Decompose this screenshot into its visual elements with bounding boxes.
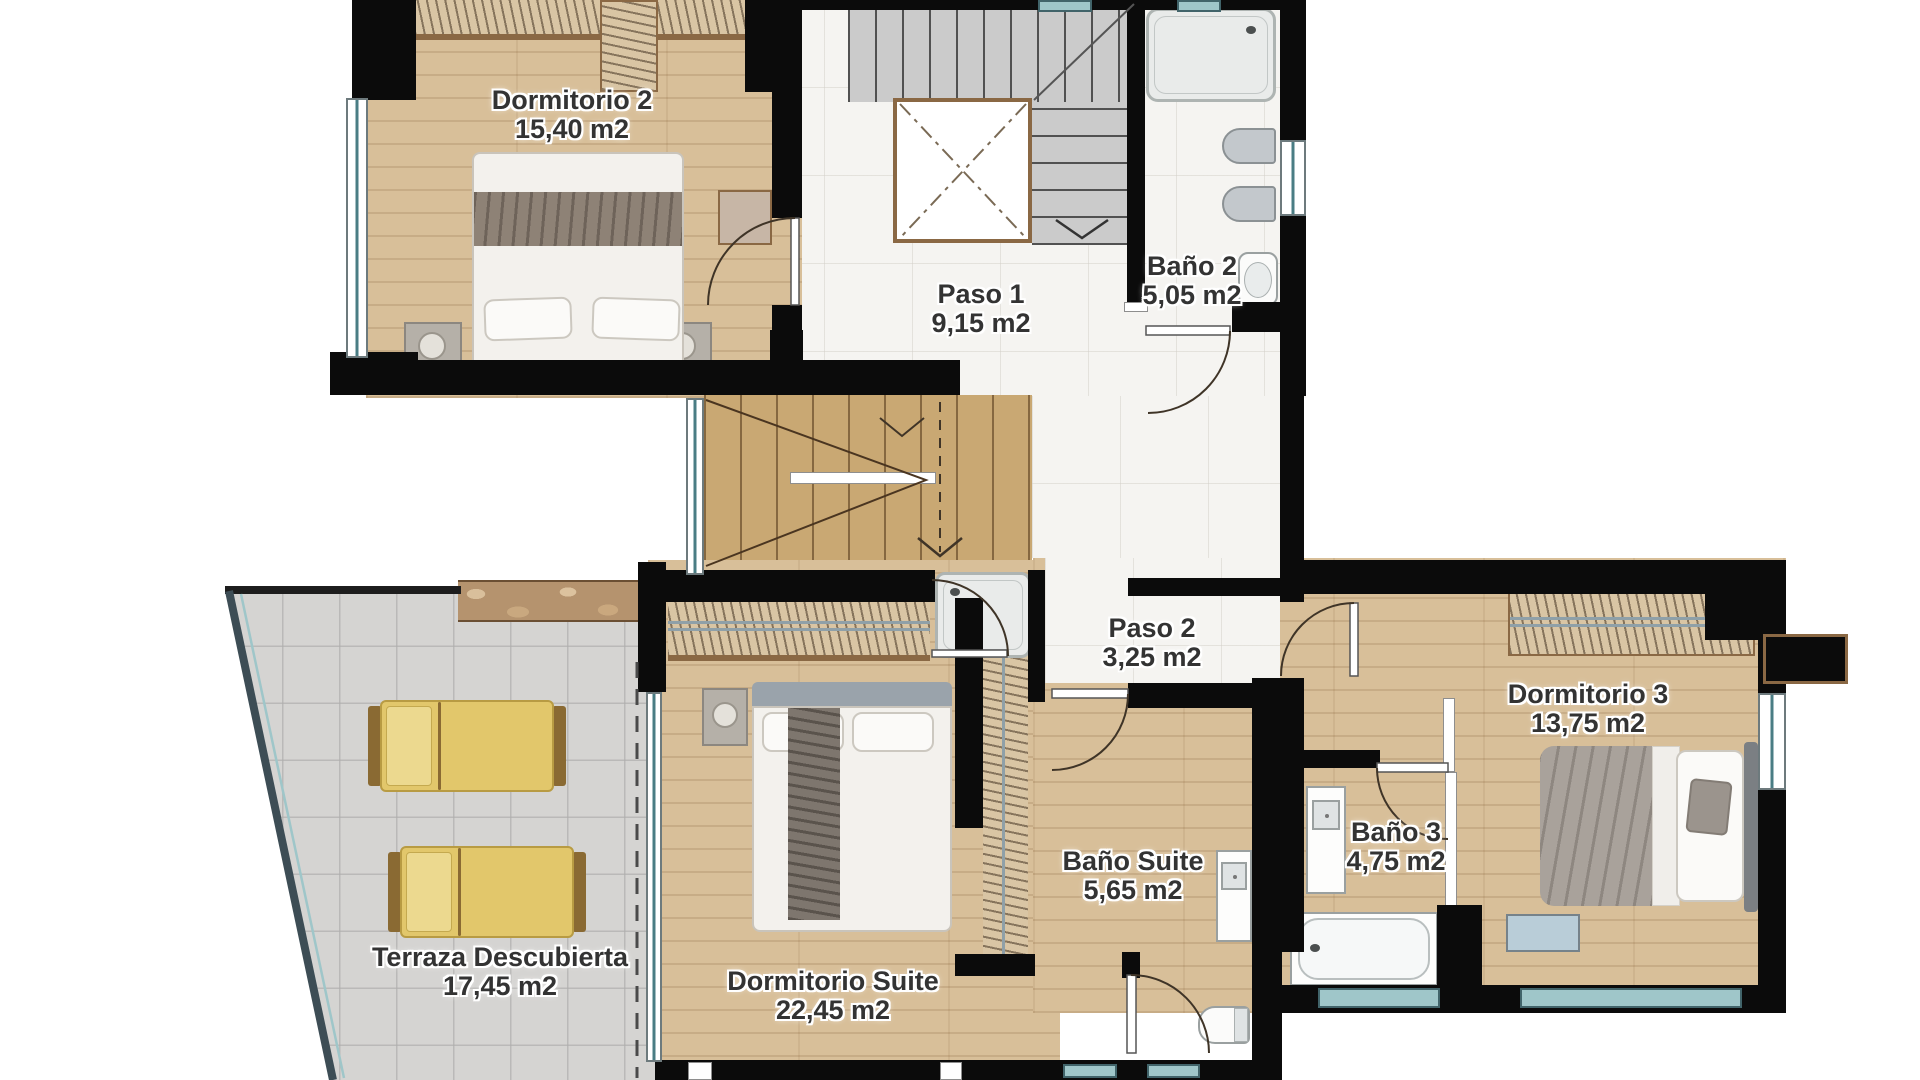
terrace-parapet bbox=[225, 586, 461, 594]
wall bbox=[955, 954, 1035, 976]
gray-pillow bbox=[1685, 778, 1732, 836]
dormitorio2-corner-closet bbox=[600, 0, 658, 92]
dormitorio2-wardrobe bbox=[415, 0, 745, 36]
stair-void bbox=[893, 98, 1032, 243]
bed-bench bbox=[1506, 914, 1580, 952]
shower-tray-bano2 bbox=[1146, 8, 1276, 102]
cabinet bbox=[718, 190, 772, 245]
wall bbox=[772, 92, 802, 218]
wall bbox=[1221, 0, 1280, 10]
room-name: Terraza Descubierta bbox=[372, 943, 628, 972]
window bbox=[1038, 0, 1092, 12]
stairs-side-flight bbox=[1032, 102, 1138, 245]
wall bbox=[1128, 578, 1280, 596]
wood-stairs bbox=[704, 395, 1032, 575]
sink bbox=[1222, 128, 1276, 164]
window bbox=[1063, 1064, 1117, 1078]
lounger-frame bbox=[572, 852, 586, 932]
room-name: Dormitorio Suite bbox=[727, 967, 939, 996]
wall bbox=[330, 360, 960, 395]
label-paso-1: Paso 1 9,15 m2 bbox=[931, 280, 1030, 338]
wall bbox=[638, 562, 666, 692]
suite-wardrobe-rail bbox=[668, 621, 930, 624]
door-jamb bbox=[688, 1062, 712, 1080]
room-area: 13,75 m2 bbox=[1508, 709, 1669, 738]
pillow bbox=[483, 296, 572, 341]
window bbox=[1177, 0, 1221, 12]
lounger-divider bbox=[458, 848, 461, 936]
headboard bbox=[1744, 742, 1758, 912]
wall bbox=[1252, 678, 1304, 952]
tub-faucet bbox=[1310, 944, 1320, 952]
room-area: 22,45 m2 bbox=[727, 996, 939, 1025]
label-bano-3: Baño 3 4,75 m2 bbox=[1346, 818, 1445, 876]
stone-wall bbox=[458, 580, 642, 622]
corridor-floor bbox=[1032, 396, 1282, 558]
window bbox=[1280, 140, 1306, 216]
toilet-tank bbox=[1234, 1008, 1248, 1042]
door-jamb bbox=[940, 1062, 962, 1080]
bed-blanket bbox=[474, 192, 682, 246]
partition bbox=[1445, 772, 1457, 912]
room-area: 17,45 m2 bbox=[372, 972, 628, 1001]
dormitorio2-wardrobe-trim bbox=[415, 34, 745, 40]
wall bbox=[772, 305, 802, 395]
wall bbox=[1122, 952, 1140, 978]
wall bbox=[1280, 0, 1306, 140]
pillow bbox=[852, 712, 934, 752]
window bbox=[346, 98, 368, 358]
window bbox=[686, 398, 704, 575]
room-area: 5,05 m2 bbox=[1142, 281, 1241, 310]
room-area: 9,15 m2 bbox=[931, 309, 1030, 338]
wall bbox=[1758, 790, 1786, 992]
toilet-seat bbox=[1244, 262, 1272, 298]
label-terraza: Terraza Descubierta 17,45 m2 bbox=[372, 943, 628, 1001]
room-name: Baño Suite bbox=[1062, 847, 1203, 876]
wall bbox=[745, 0, 802, 92]
stairs-upper-flight bbox=[848, 8, 1138, 102]
suite-wardrobe-trim bbox=[668, 655, 930, 661]
pillow bbox=[591, 296, 680, 341]
sink bbox=[1222, 186, 1276, 222]
wall bbox=[352, 0, 416, 100]
stair-landing-edge bbox=[790, 472, 936, 484]
lamp bbox=[418, 332, 446, 360]
suite-wardrobe-rail2 bbox=[668, 628, 930, 631]
label-paso-2: Paso 2 3,25 m2 bbox=[1102, 614, 1201, 672]
room-name: Dormitorio 2 bbox=[492, 86, 653, 115]
room-area: 4,75 m2 bbox=[1346, 847, 1445, 876]
shower-drain bbox=[950, 588, 960, 596]
suite-bed-headboard bbox=[752, 682, 952, 708]
window bbox=[1520, 988, 1742, 1008]
wall bbox=[1028, 570, 1045, 702]
window bbox=[646, 692, 662, 1062]
sink-basin bbox=[1312, 800, 1340, 830]
wall bbox=[1252, 950, 1282, 1080]
bed-throw bbox=[788, 708, 840, 920]
wall bbox=[1280, 216, 1306, 396]
shower-tray-suite bbox=[935, 572, 1031, 658]
room-name: Baño 3 bbox=[1346, 818, 1445, 847]
label-dormitorio-suite: Dormitorio Suite 22,45 m2 bbox=[727, 967, 939, 1025]
room-name: Baño 2 bbox=[1142, 252, 1241, 281]
lounger-pillow bbox=[386, 706, 432, 786]
lounger-divider bbox=[438, 702, 441, 790]
room-area: 3,25 m2 bbox=[1102, 643, 1201, 672]
window bbox=[1318, 988, 1440, 1008]
lounger-pillow bbox=[406, 852, 452, 932]
lounger-frame bbox=[552, 706, 566, 786]
lamp bbox=[712, 702, 738, 728]
wall bbox=[802, 0, 1038, 10]
wall bbox=[1280, 560, 1770, 594]
sink-basin bbox=[1221, 862, 1247, 890]
window bbox=[1758, 693, 1786, 790]
partition bbox=[1443, 698, 1455, 772]
wall bbox=[1705, 592, 1765, 640]
window bbox=[1147, 1064, 1200, 1078]
shower-drain bbox=[1246, 26, 1256, 34]
room-area: 15,40 m2 bbox=[492, 115, 653, 144]
label-dormitorio-3: Dormitorio 3 13,75 m2 bbox=[1508, 680, 1669, 738]
room-area: 5,65 m2 bbox=[1062, 876, 1203, 905]
balcony-ledge bbox=[1763, 634, 1848, 684]
room-name: Paso 2 bbox=[1102, 614, 1201, 643]
wall bbox=[1304, 750, 1380, 768]
room-name: Dormitorio 3 bbox=[1508, 680, 1669, 709]
label-bano-suite: Baño Suite 5,65 m2 bbox=[1062, 847, 1203, 905]
terrace-floor bbox=[225, 590, 657, 1080]
wall bbox=[955, 598, 983, 828]
label-dormitorio-2: Dormitorio 2 15,40 m2 bbox=[492, 86, 653, 144]
room-name: Paso 1 bbox=[931, 280, 1030, 309]
floor-plan: Dormitorio 2 15,40 m2 Paso 1 9,15 m2 Bañ… bbox=[0, 0, 1920, 1080]
label-bano-2: Baño 2 5,05 m2 bbox=[1142, 252, 1241, 310]
